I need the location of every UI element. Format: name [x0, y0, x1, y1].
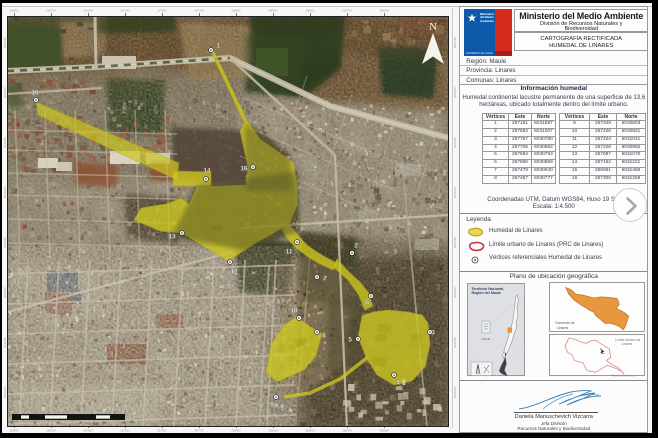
svg-text:15: 15: [31, 89, 39, 96]
svg-text:9: 9: [270, 401, 274, 408]
svg-text:Límite urbano de: Límite urbano de: [615, 337, 640, 341]
svg-text:14: 14: [203, 167, 211, 174]
svg-text:Fuente de Linares: Fuente de Linares: [611, 373, 635, 376]
svg-text:LINCE: LINCE: [481, 337, 490, 341]
svg-text:Comunas de: Comunas de: [555, 321, 575, 325]
svg-text:4: 4: [396, 379, 400, 386]
svg-text:10: 10: [290, 307, 298, 314]
svg-text:11: 11: [286, 248, 293, 255]
svg-text:1: 1: [216, 42, 220, 49]
svg-text:2: 2: [354, 242, 358, 249]
svg-text:Linares: Linares: [557, 326, 568, 330]
svg-text:Linares: Linares: [621, 342, 632, 346]
svg-text:3: 3: [431, 329, 435, 336]
svg-text:5: 5: [348, 336, 352, 343]
svg-text:12: 12: [230, 268, 238, 275]
svg-text:7: 7: [323, 275, 327, 282]
svg-text:N: N: [429, 21, 437, 33]
svg-text:13: 13: [168, 233, 176, 240]
svg-text:16: 16: [240, 165, 248, 172]
svg-text:6: 6: [365, 299, 369, 306]
svg-text:8: 8: [322, 332, 326, 339]
